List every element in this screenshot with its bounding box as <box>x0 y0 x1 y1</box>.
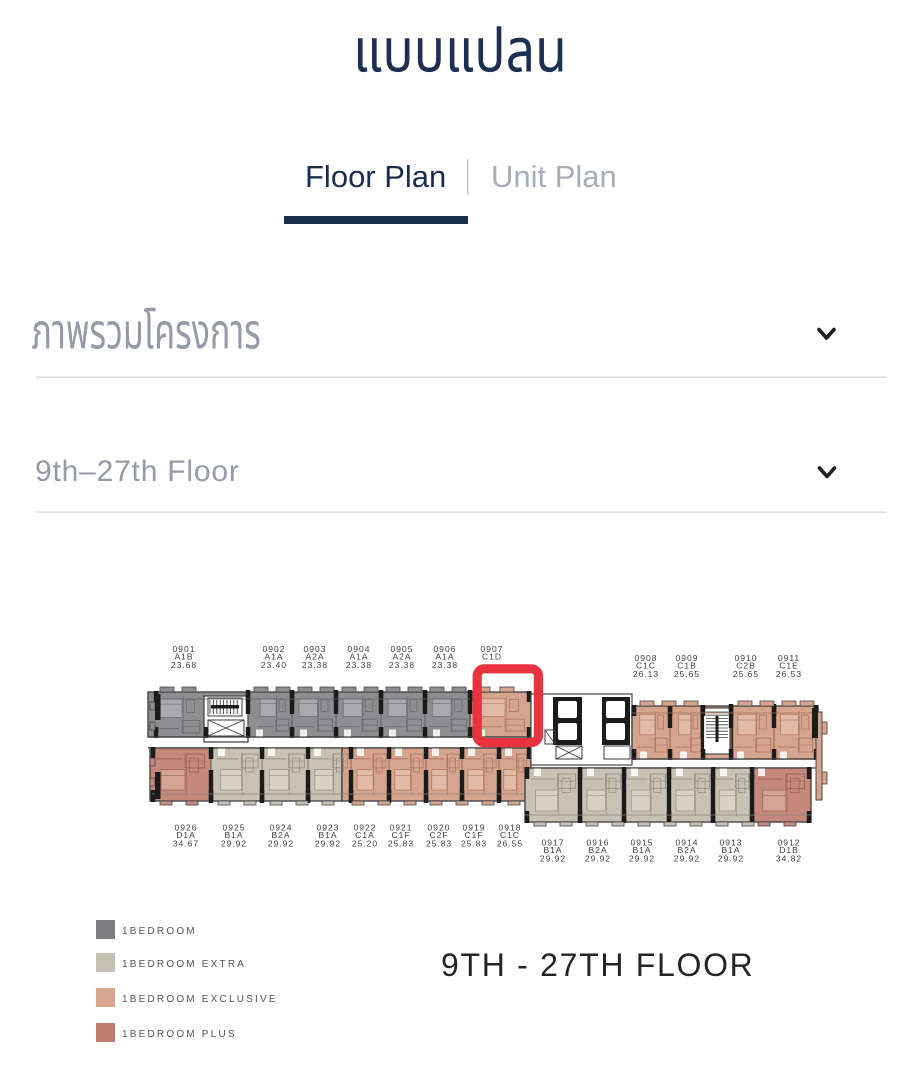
svg-text:1BEDROOM EXCLUSIVE: 1BEDROOM EXCLUSIVE <box>122 994 278 1005</box>
svg-text:23.38: 23.38 <box>302 660 328 670</box>
svg-text:9TH - 27TH FLOOR: 9TH - 27TH FLOOR <box>441 947 754 983</box>
svg-text:23.40: 23.40 <box>261 660 287 670</box>
svg-text:1BEDROOM EXTRA: 1BEDROOM EXTRA <box>122 959 246 970</box>
svg-text:34.67: 34.67 <box>173 839 199 849</box>
svg-text:29.92: 29.92 <box>585 854 611 864</box>
svg-text:25.65: 25.65 <box>733 669 759 679</box>
svg-text:C1D: C1D <box>482 652 502 662</box>
svg-text:Unit Plan: Unit Plan <box>491 159 617 194</box>
svg-text:29.92: 29.92 <box>718 854 744 864</box>
svg-text:29.92: 29.92 <box>268 839 294 849</box>
svg-text:25.83: 25.83 <box>461 839 487 849</box>
svg-text:23.38: 23.38 <box>432 660 458 670</box>
svg-text:25.83: 25.83 <box>388 839 414 849</box>
svg-text:29.92: 29.92 <box>674 854 700 864</box>
svg-text:29.92: 29.92 <box>629 854 655 864</box>
svg-text:Floor Plan: Floor Plan <box>305 159 446 194</box>
svg-text:25.65: 25.65 <box>674 669 700 679</box>
svg-text:25.20: 25.20 <box>352 839 378 849</box>
svg-text:26.53: 26.53 <box>776 669 802 679</box>
svg-text:1BEDROOM: 1BEDROOM <box>122 926 197 937</box>
svg-text:29.92: 29.92 <box>315 839 341 849</box>
svg-text:23.38: 23.38 <box>389 660 415 670</box>
svg-text:25.83: 25.83 <box>426 839 452 849</box>
svg-text:23.38: 23.38 <box>346 660 372 670</box>
svg-text:1BEDROOM PLUS: 1BEDROOM PLUS <box>122 1029 237 1040</box>
svg-text:26.55: 26.55 <box>497 839 523 849</box>
svg-text:26.13: 26.13 <box>633 669 659 679</box>
svg-text:29.92: 29.92 <box>540 854 566 864</box>
svg-text:29.92: 29.92 <box>221 839 247 849</box>
svg-text:34.82: 34.82 <box>776 854 802 864</box>
svg-text:23.68: 23.68 <box>171 660 197 670</box>
svg-text:9th–27th Floor: 9th–27th Floor <box>35 455 240 488</box>
